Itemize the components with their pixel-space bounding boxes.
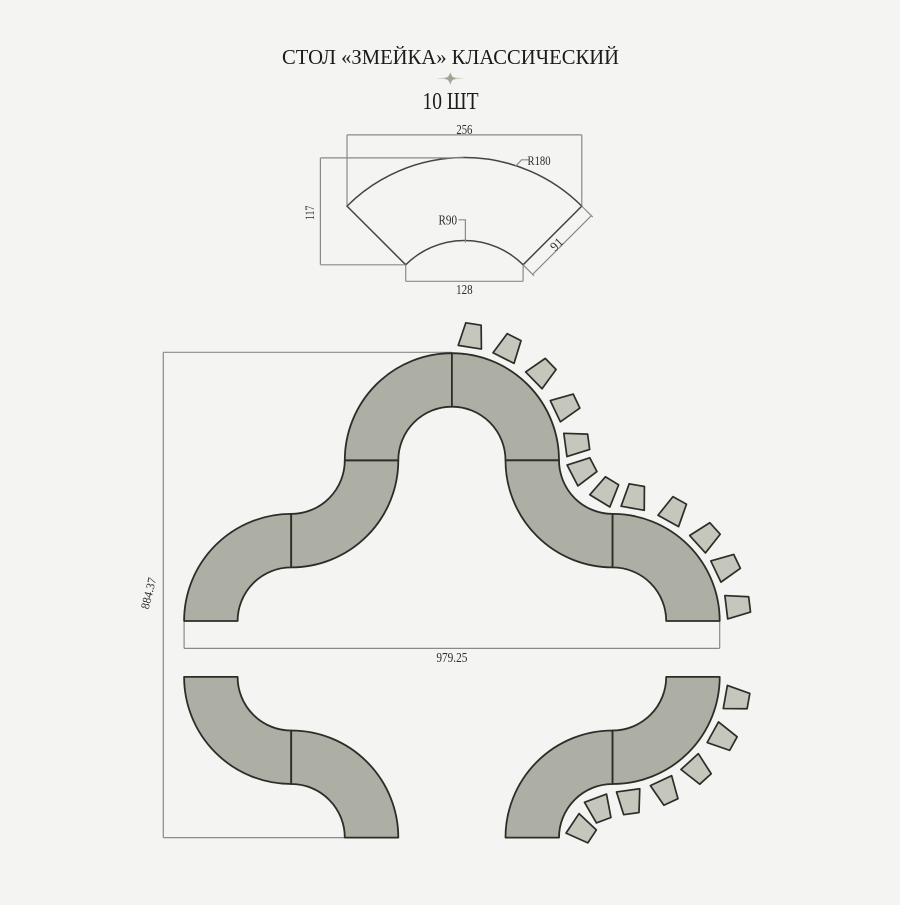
- svg-text:R90: R90: [439, 213, 458, 228]
- svg-text:128: 128: [456, 282, 473, 297]
- svg-text:256: 256: [456, 122, 472, 137]
- svg-text:R180: R180: [528, 153, 551, 168]
- svg-text:СТОЛ «ЗМЕЙКА» КЛАССИЧЕСКИЙ: СТОЛ «ЗМЕЙКА» КЛАССИЧЕСКИЙ: [282, 45, 619, 69]
- svg-text:979.25: 979.25: [436, 650, 467, 665]
- svg-text:117: 117: [303, 206, 317, 221]
- svg-text:10 ШТ: 10 ШТ: [423, 88, 479, 115]
